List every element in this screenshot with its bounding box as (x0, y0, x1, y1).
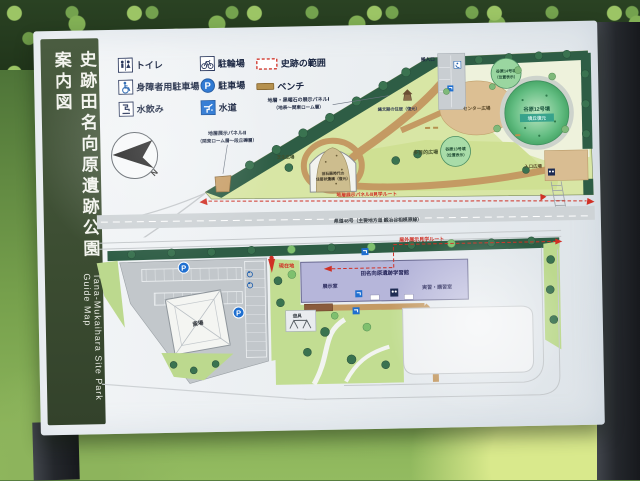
lower-map: P P 斎場 (91, 227, 570, 406)
learning-center-building: 田名向原遺跡学習館 展示室 実習・講習室 (301, 259, 469, 302)
svg-text:（地表〜関東ローム層）: （地表〜関東ローム層） (273, 103, 324, 111)
pit-dwelling-label: 旧石器時代の (322, 170, 345, 175)
funeral-hall-building: 斎場 (165, 290, 230, 355)
southwest-road-line (102, 380, 306, 403)
svg-text:P: P (181, 264, 186, 273)
west-green-strip (97, 261, 125, 329)
svg-text:（位置表示）: （位置表示） (444, 152, 467, 157)
svg-text:N: N (149, 167, 160, 178)
svg-text:谷原14号墳: 谷原14号墳 (496, 67, 518, 73)
svg-text:（関東ローム層〜段丘礫層）: （関東ローム層〜段丘礫層） (197, 137, 257, 145)
panel2-label: 地層展示パネルⅡ (208, 129, 246, 137)
training-room-label: 実習・講習室 (422, 283, 452, 291)
panel1-label: 地層・黒曜石の展示パネルⅠ (268, 96, 330, 104)
outdoor-route-label: 屋外展示見学ルート (399, 236, 444, 244)
tree-belt (107, 236, 559, 261)
service-entrance-driveway (438, 53, 466, 110)
prefectural-road: 県道48号（主要地方道 鍛冶谷相模原線） (97, 206, 595, 230)
svg-text:P: P (236, 309, 241, 318)
compass-icon: N (111, 132, 160, 179)
entrance-plaza-area (540, 150, 589, 208)
multi-plaza-label: 多目的広場 (413, 149, 438, 156)
svg-text:（位置表示）: （位置表示） (495, 74, 518, 79)
park-sign-photo: { "sign": { "title_jp": "史跡田名向原遺跡公園案内図",… (0, 0, 640, 480)
upper-map: 谷原12号墳 墳丘復元 谷原14号墳 （位置表示） 谷原13号墳 （位置表示） (93, 29, 597, 239)
svg-text:谷原13号墳: 谷原13号墳 (445, 145, 467, 151)
exhibit-room-label: 展示室 (322, 283, 338, 290)
sign-board: 史跡田名向原遺跡公園案内図 Tana-Mukaihara Site Park G… (33, 21, 605, 436)
strata-panel2-structure (215, 176, 231, 192)
svg-text:住居状遺構（復元）: 住居状遺構（復元） (316, 176, 350, 182)
playground-area: 遊具 (286, 310, 316, 332)
mound-13: 谷原13号墳 （位置表示） (440, 136, 471, 167)
